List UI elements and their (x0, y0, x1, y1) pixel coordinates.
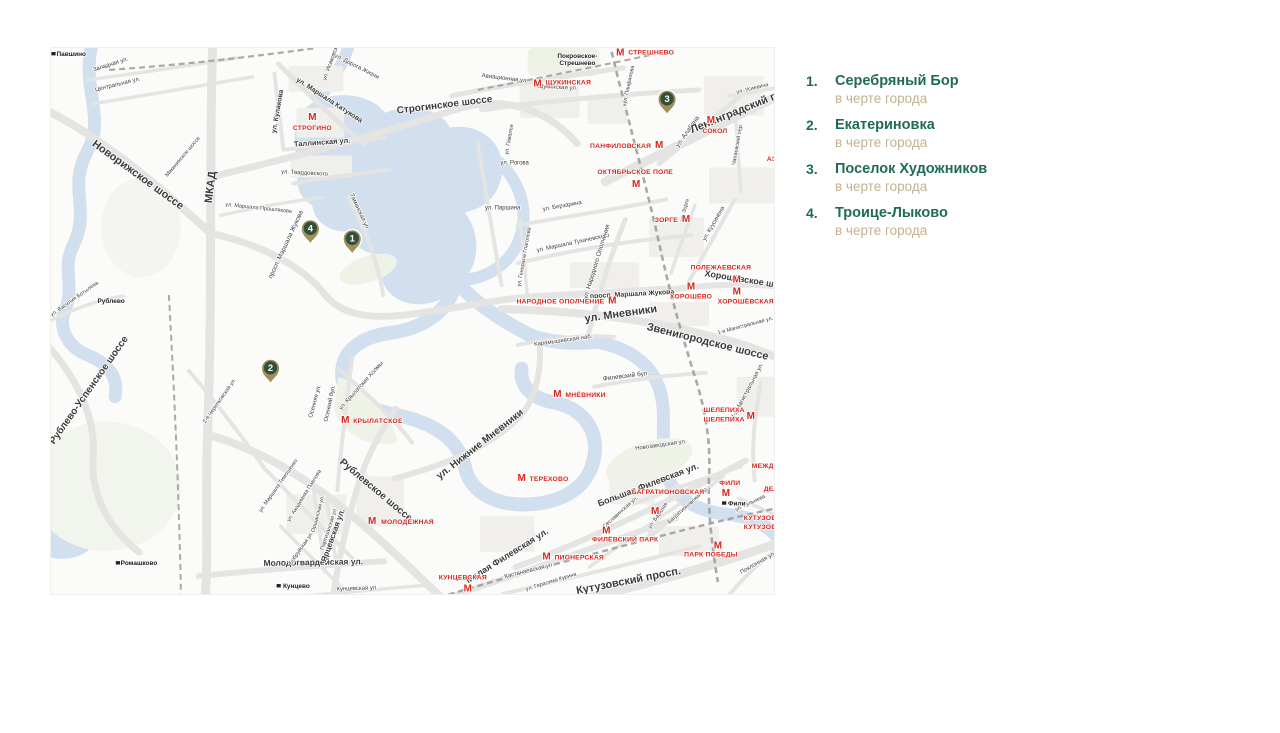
metro-m-icon: М (517, 473, 525, 484)
pin-number: 3 (664, 94, 669, 105)
rail-station: Рублево (97, 297, 124, 305)
metro-station-label: ТЕРЕХОВО (530, 476, 569, 483)
legend-item-note: в черте города (835, 222, 948, 239)
legend-item-number: 2. (806, 116, 835, 151)
metro-m-icon: М (533, 78, 541, 89)
place-label: Павшино (57, 51, 86, 58)
metro-m-icon: М (733, 275, 741, 286)
metro-m-icon: М (687, 282, 695, 293)
pin-number: 2 (268, 363, 273, 374)
street-label: Молодогвардейская ул. (263, 556, 363, 568)
pin-number: 4 (308, 224, 314, 235)
place-label: Кунцево (283, 583, 310, 590)
legend-item-title: Троице-Лыково (835, 204, 948, 222)
metro-station-label: ФИЛИ (719, 480, 740, 487)
metro-m-icon: М (714, 541, 722, 552)
legend-item-text: Серебряный Бор в черте города (835, 72, 959, 107)
legend-item-title: Серебряный Бор (835, 72, 959, 90)
metro-m-icon: М (682, 214, 690, 225)
legend-item: 4. Троице-Лыково в черте города (806, 204, 1166, 239)
rail-station-icon (277, 584, 281, 587)
metro-m-icon: М (722, 488, 730, 499)
metro-station-label: ПОЛЕЖАЕВСКАЯ (691, 265, 752, 272)
legend-item-note: в черте города (835, 178, 987, 195)
metro-m-icon: М (341, 415, 349, 426)
map-canvas[interactable]: Западная ул.Центральная ул.Новорижское ш… (50, 47, 775, 595)
metro-station-label: ОКТЯБРЬСКОЕ ПОЛЕ (597, 169, 673, 176)
legend-item: 3. Поселок Художников в черте города (806, 160, 1166, 195)
pin-number: 1 (350, 234, 355, 245)
metro-station-label: КРЫЛАТСКОЕ (353, 418, 403, 425)
metro-station-label: ФИЛЁВСКИЙ ПАРК (592, 535, 659, 544)
legend-item-text: Екатериновка в черте города (835, 116, 935, 151)
metro-station-label: КУТУЗОВСКАЯ (744, 515, 774, 522)
metro-station-label: КУНЦЕВСКАЯ (439, 575, 487, 582)
metro-m-icon: М (655, 140, 663, 151)
metro-m-icon: М (747, 411, 755, 422)
metro-station-label: АЭРОПОРТ (767, 156, 774, 163)
metro-station-label: КУТУЗОВСКАЯ (744, 524, 774, 531)
metro-station-label: ШЕЛЕПИХА (703, 417, 744, 424)
metro-station-label: МОЛОДЁЖНАЯ (381, 518, 434, 526)
metro-m-icon: М (553, 389, 561, 400)
metro-station-label: ЗОРГЕ (655, 217, 679, 224)
metro-station-label: СОКОЛ (702, 128, 727, 135)
metro-m-icon: М (602, 526, 610, 537)
metro-station-label: ШЕЛЕПИХА (703, 407, 744, 414)
street-label: ул. Паршина (485, 205, 521, 211)
metro-station-label: СТРОГИНО (293, 125, 332, 132)
metro-station: МКУТУЗОВСКАЯКУТУЗОВСКАЯ (744, 515, 774, 532)
metro-m-icon: М (616, 48, 624, 58)
metro-station-label: СТРЕШНЕВО (628, 49, 674, 56)
metro-station-label: МНЁВНИКИ (565, 391, 605, 399)
place-label: Фили (728, 500, 746, 507)
metro-station-label: ПАРК ПОБЕДЫ (684, 552, 738, 559)
metro-station-label: НАРОДНОЕ ОПОЛЧЕНИЕ (516, 299, 604, 306)
metro-m-icon: М (308, 112, 316, 123)
legend-item-note: в черте города (835, 134, 935, 151)
legend-item: 2. Екатериновка в черте города (806, 116, 1166, 151)
metro-m-icon: М (707, 115, 715, 126)
legend-item-note: в черте города (835, 90, 959, 107)
metro-station-label: МЕЖДУНАРОДНАЯ (752, 463, 774, 470)
legend-item-text: Поселок Художников в черте города (835, 160, 987, 195)
metro-m-icon: М (368, 516, 376, 527)
metro-m-icon: М (651, 506, 659, 517)
metro-station-label: ПИОНЕРСКАЯ (554, 555, 603, 562)
metro-station-label: ХОРОШЁВО (670, 293, 712, 301)
metro-m-icon: М (733, 287, 741, 298)
metro-station-label: ЩУКИНСКАЯ (546, 79, 592, 86)
metro-m-icon: М (608, 296, 616, 307)
place-label: Покровское- (557, 53, 597, 60)
metro-station-label: БАГРАТИОНОВСКАЯ (632, 489, 705, 496)
page: { "legend": { "items": [ {"number":"1.",… (0, 0, 1280, 733)
street-label: ул. Рогова (500, 161, 529, 167)
metro-m-icon: М (632, 179, 640, 190)
place-label: Ромашково (121, 560, 158, 567)
place-label: Стрешнево (559, 60, 595, 67)
rail-station-icon (51, 52, 55, 55)
legend-item-title: Екатериновка (835, 116, 935, 134)
legend-item-number: 1. (806, 72, 835, 107)
metro-station-label: ПАНФИЛОВСКАЯ (590, 143, 651, 150)
legend-list: 1. Серебряный Бор в черте города 2. Екат… (806, 72, 1166, 248)
place-label: Рублево (97, 297, 124, 305)
legend-item-title: Поселок Художников (835, 160, 987, 178)
rail-station: Покровское-Стрешнево (557, 53, 597, 67)
rail-station-icon (722, 501, 726, 504)
rail-station: Ромашково (116, 560, 158, 567)
rail-station-icon (116, 561, 120, 564)
legend-item-number: 3. (806, 160, 835, 195)
metro-m-icon: М (464, 584, 472, 594)
metro-station-label: ХОРОШЁВСКАЯ (718, 298, 774, 306)
legend-item-number: 4. (806, 204, 835, 239)
rail-station: Павшино (51, 51, 86, 58)
legend-item-text: Троице-Лыково в черте города (835, 204, 948, 239)
legend-item: 1. Серебряный Бор в черте города (806, 72, 1166, 107)
metro-m-icon: М (542, 552, 550, 563)
metro-station-label: ДЕЛОВОЙ ЦЕНТР (764, 484, 774, 493)
